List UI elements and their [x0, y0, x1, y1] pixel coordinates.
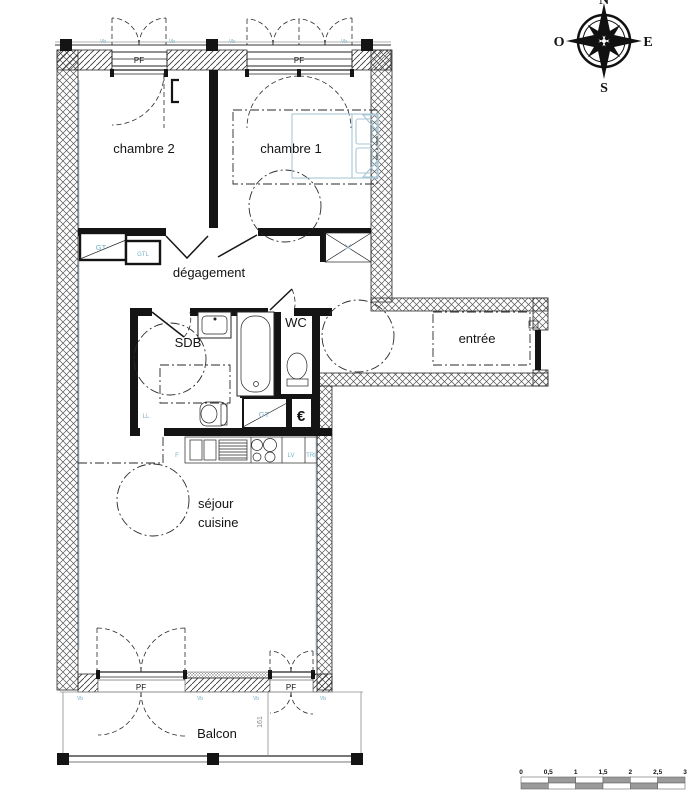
entree-north-wall [371, 298, 548, 311]
equipment-label-f: F [175, 453, 179, 459]
wc-door-arc [292, 289, 295, 310]
scale-tick: 2,5 [653, 769, 662, 776]
window-label-vb: Vb [320, 696, 326, 702]
kitchen-counter [185, 437, 317, 463]
compass-label-east: E [643, 35, 652, 50]
entrance-door [535, 330, 541, 370]
toilet-bowl [201, 405, 217, 423]
north-windows [55, 18, 391, 128]
scale-tick: 0,5 [544, 769, 553, 776]
duct-blue-x [345, 244, 351, 250]
window-swing-arc [112, 18, 139, 45]
railing-post [207, 753, 219, 765]
floor-plan-svg: chambre 2 chambre 1 dégagement SDB WC en… [0, 0, 692, 800]
window-swing-arc-inner [112, 73, 164, 128]
west-exterior-wall [57, 50, 78, 690]
window-jamb [350, 69, 354, 77]
kitchen-zone-line [78, 437, 163, 463]
fixtures [80, 114, 378, 463]
bedroom1-south-wall [258, 228, 325, 236]
equipment-label-gtl: GTL [137, 252, 149, 258]
equipment-label-ll: LL [143, 414, 150, 420]
east-exterior-wall-upper [371, 50, 392, 302]
window-swing-arc-inner [247, 76, 299, 128]
dimension-label-161: 161 [257, 716, 264, 728]
bedroom2-door [166, 236, 208, 258]
room-label-balcon: Balcon [197, 726, 237, 741]
window-label-vb: Vb [253, 696, 259, 702]
duct-top-wall [325, 228, 371, 233]
door-swing-arc [141, 692, 185, 736]
window-swing-arc-inner [299, 76, 351, 128]
room-label-entree: entrée [459, 331, 496, 346]
compass-rose: N O E S [554, 0, 653, 96]
equipment-label-euro: € [297, 408, 306, 425]
railing-post [57, 753, 69, 765]
cabinet-east-wall [312, 394, 320, 436]
entree-south-wall [317, 373, 548, 386]
facade-post [206, 39, 218, 51]
floor-plan: chambre 2 chambre 1 dégagement SDB WC en… [0, 0, 692, 800]
sdb-south-wall-seg2 [164, 428, 332, 436]
equipment-label-lv: LV [288, 453, 295, 459]
facade-post [361, 39, 373, 51]
north-wall-seg1 [57, 50, 112, 70]
turning-circle-sejour [117, 464, 189, 536]
window-label-vb: Vb [77, 696, 83, 702]
window-jamb [164, 69, 168, 77]
room-label-degagement: dégagement [173, 265, 246, 280]
scale-bar: 0 0,5 1 1,5 2 2,5 3 [519, 769, 687, 789]
burner [252, 440, 263, 451]
window-swing-arc [325, 18, 352, 45]
wc-east-wall [312, 308, 320, 398]
door-swing-arc [270, 651, 291, 672]
scale-tick: 2 [628, 769, 632, 776]
window-label-pf1: PF [134, 56, 144, 65]
bracket-mark [172, 80, 179, 102]
window-label-vb: Vb [341, 39, 347, 45]
labels: chambre 2 chambre 1 dégagement SDB WC en… [77, 39, 496, 741]
sdb-wc-divider [274, 312, 281, 396]
scale-tick: 3 [683, 769, 687, 776]
compass-label-west: O [554, 35, 565, 50]
window-swing-arc [139, 18, 166, 45]
window-label-pf2: PF [294, 56, 304, 65]
burner [265, 452, 275, 462]
wall-between-bedrooms [209, 70, 218, 228]
washbasin [198, 312, 231, 338]
door-swing-arc [97, 628, 141, 672]
room-label-sdb: SDB [175, 335, 202, 350]
toilet-bowl [287, 353, 307, 379]
fridge-door [190, 440, 202, 460]
sdb-toilet [200, 402, 227, 426]
scale-bar-segments [521, 777, 685, 789]
compass-center [602, 39, 606, 43]
window-label-vb: Vb [169, 39, 175, 45]
north-wall-seg3 [352, 50, 391, 70]
wc-door [270, 289, 292, 310]
window-label-vb: Vb [229, 39, 235, 45]
room-label-sejour: séjour [198, 496, 234, 511]
facade-post [60, 39, 72, 51]
toilet-tank [287, 379, 308, 386]
scale-tick: 1 [574, 769, 578, 776]
room-label-chambre2: chambre 2 [113, 141, 174, 156]
sdb-south-wall-seg1 [130, 428, 140, 436]
window-swing-arc [273, 19, 299, 45]
room-label-chambre1: chambre 1 [260, 141, 321, 156]
sdb-door-arc [184, 312, 191, 337]
south-wall-insulation [184, 672, 270, 678]
sdb-west-wall [130, 308, 138, 436]
wc-toilet [287, 353, 308, 386]
window-jamb [245, 69, 249, 77]
fridge-door [204, 440, 216, 460]
turning-circle-sdb [134, 323, 206, 395]
window-label-pf4: PF [286, 683, 296, 692]
equipment-label-tri: TRI [306, 453, 316, 459]
door-swing-arc [98, 692, 141, 735]
window-label-vb: Vb [197, 696, 203, 702]
south-wall-seg3 [313, 674, 332, 692]
window-swing-arc [247, 19, 273, 45]
south-wall-seg2 [184, 678, 270, 692]
window-jamb [110, 69, 114, 77]
south-wall-seg1 [78, 674, 98, 692]
door-swing-arc [291, 692, 313, 714]
toilet-outline [200, 402, 227, 426]
room-label-cuisine: cuisine [198, 515, 238, 530]
burner [264, 439, 277, 452]
door-swing-arc [141, 628, 185, 672]
bedroom1-door [218, 235, 257, 257]
room-label-wc: WC [285, 315, 307, 330]
window-label-vb: Vb [100, 39, 106, 45]
drainer-lines [219, 443, 247, 458]
scale-tick: 1,5 [598, 769, 607, 776]
duct-box [325, 233, 371, 262]
window-label-pf3: PF [136, 683, 146, 692]
compass-label-south: S [600, 81, 608, 96]
compass-label-north: N [599, 0, 609, 8]
sdb-clearance-zone [160, 365, 230, 403]
entree-east-wall-upper [533, 298, 548, 330]
burner [253, 453, 261, 461]
bathtub [237, 312, 274, 396]
window-swing-arc [299, 19, 325, 45]
railing-post [351, 753, 363, 765]
scale-tick: 0 [519, 769, 523, 776]
equipment-label-gt-kitchen: GT [259, 410, 270, 419]
equipment-label-gt: GT [96, 243, 107, 252]
door-swing-arc [291, 651, 313, 672]
washbasin-tap [214, 318, 217, 321]
bathtub-outline [237, 312, 274, 396]
door-swing-arc [270, 692, 291, 713]
north-wall-seg2 [167, 50, 247, 70]
